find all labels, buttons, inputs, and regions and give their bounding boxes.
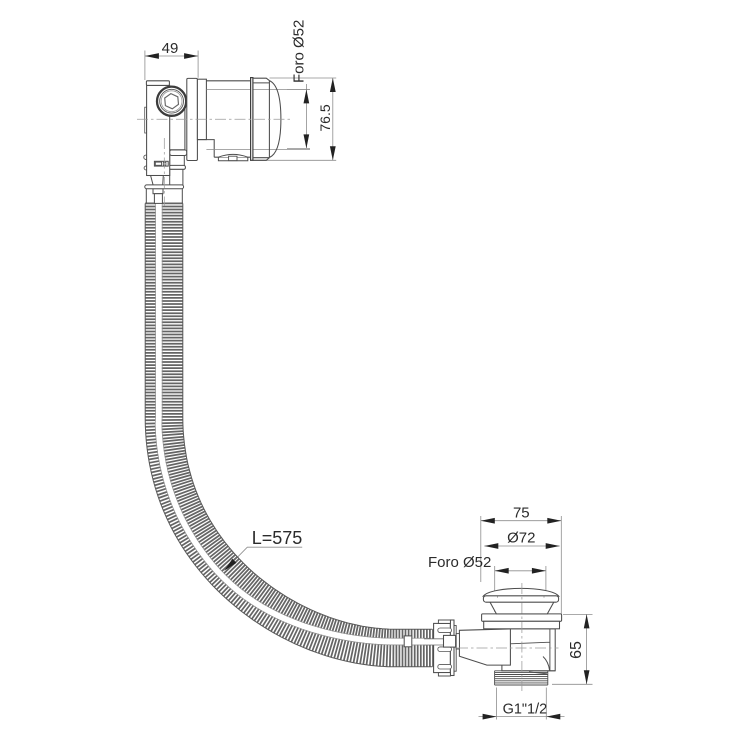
svg-text:76.5: 76.5 <box>317 104 333 131</box>
svg-text:G1"1/2: G1"1/2 <box>503 702 548 718</box>
svg-text:Foro Ø52: Foro Ø52 <box>291 20 308 83</box>
svg-text:49: 49 <box>162 40 179 57</box>
svg-text:L=575: L=575 <box>252 528 303 548</box>
svg-text:65: 65 <box>568 641 585 659</box>
svg-text:Foro Ø52: Foro Ø52 <box>428 554 491 571</box>
svg-text:Ø72: Ø72 <box>507 530 535 547</box>
svg-text:75: 75 <box>513 504 530 521</box>
